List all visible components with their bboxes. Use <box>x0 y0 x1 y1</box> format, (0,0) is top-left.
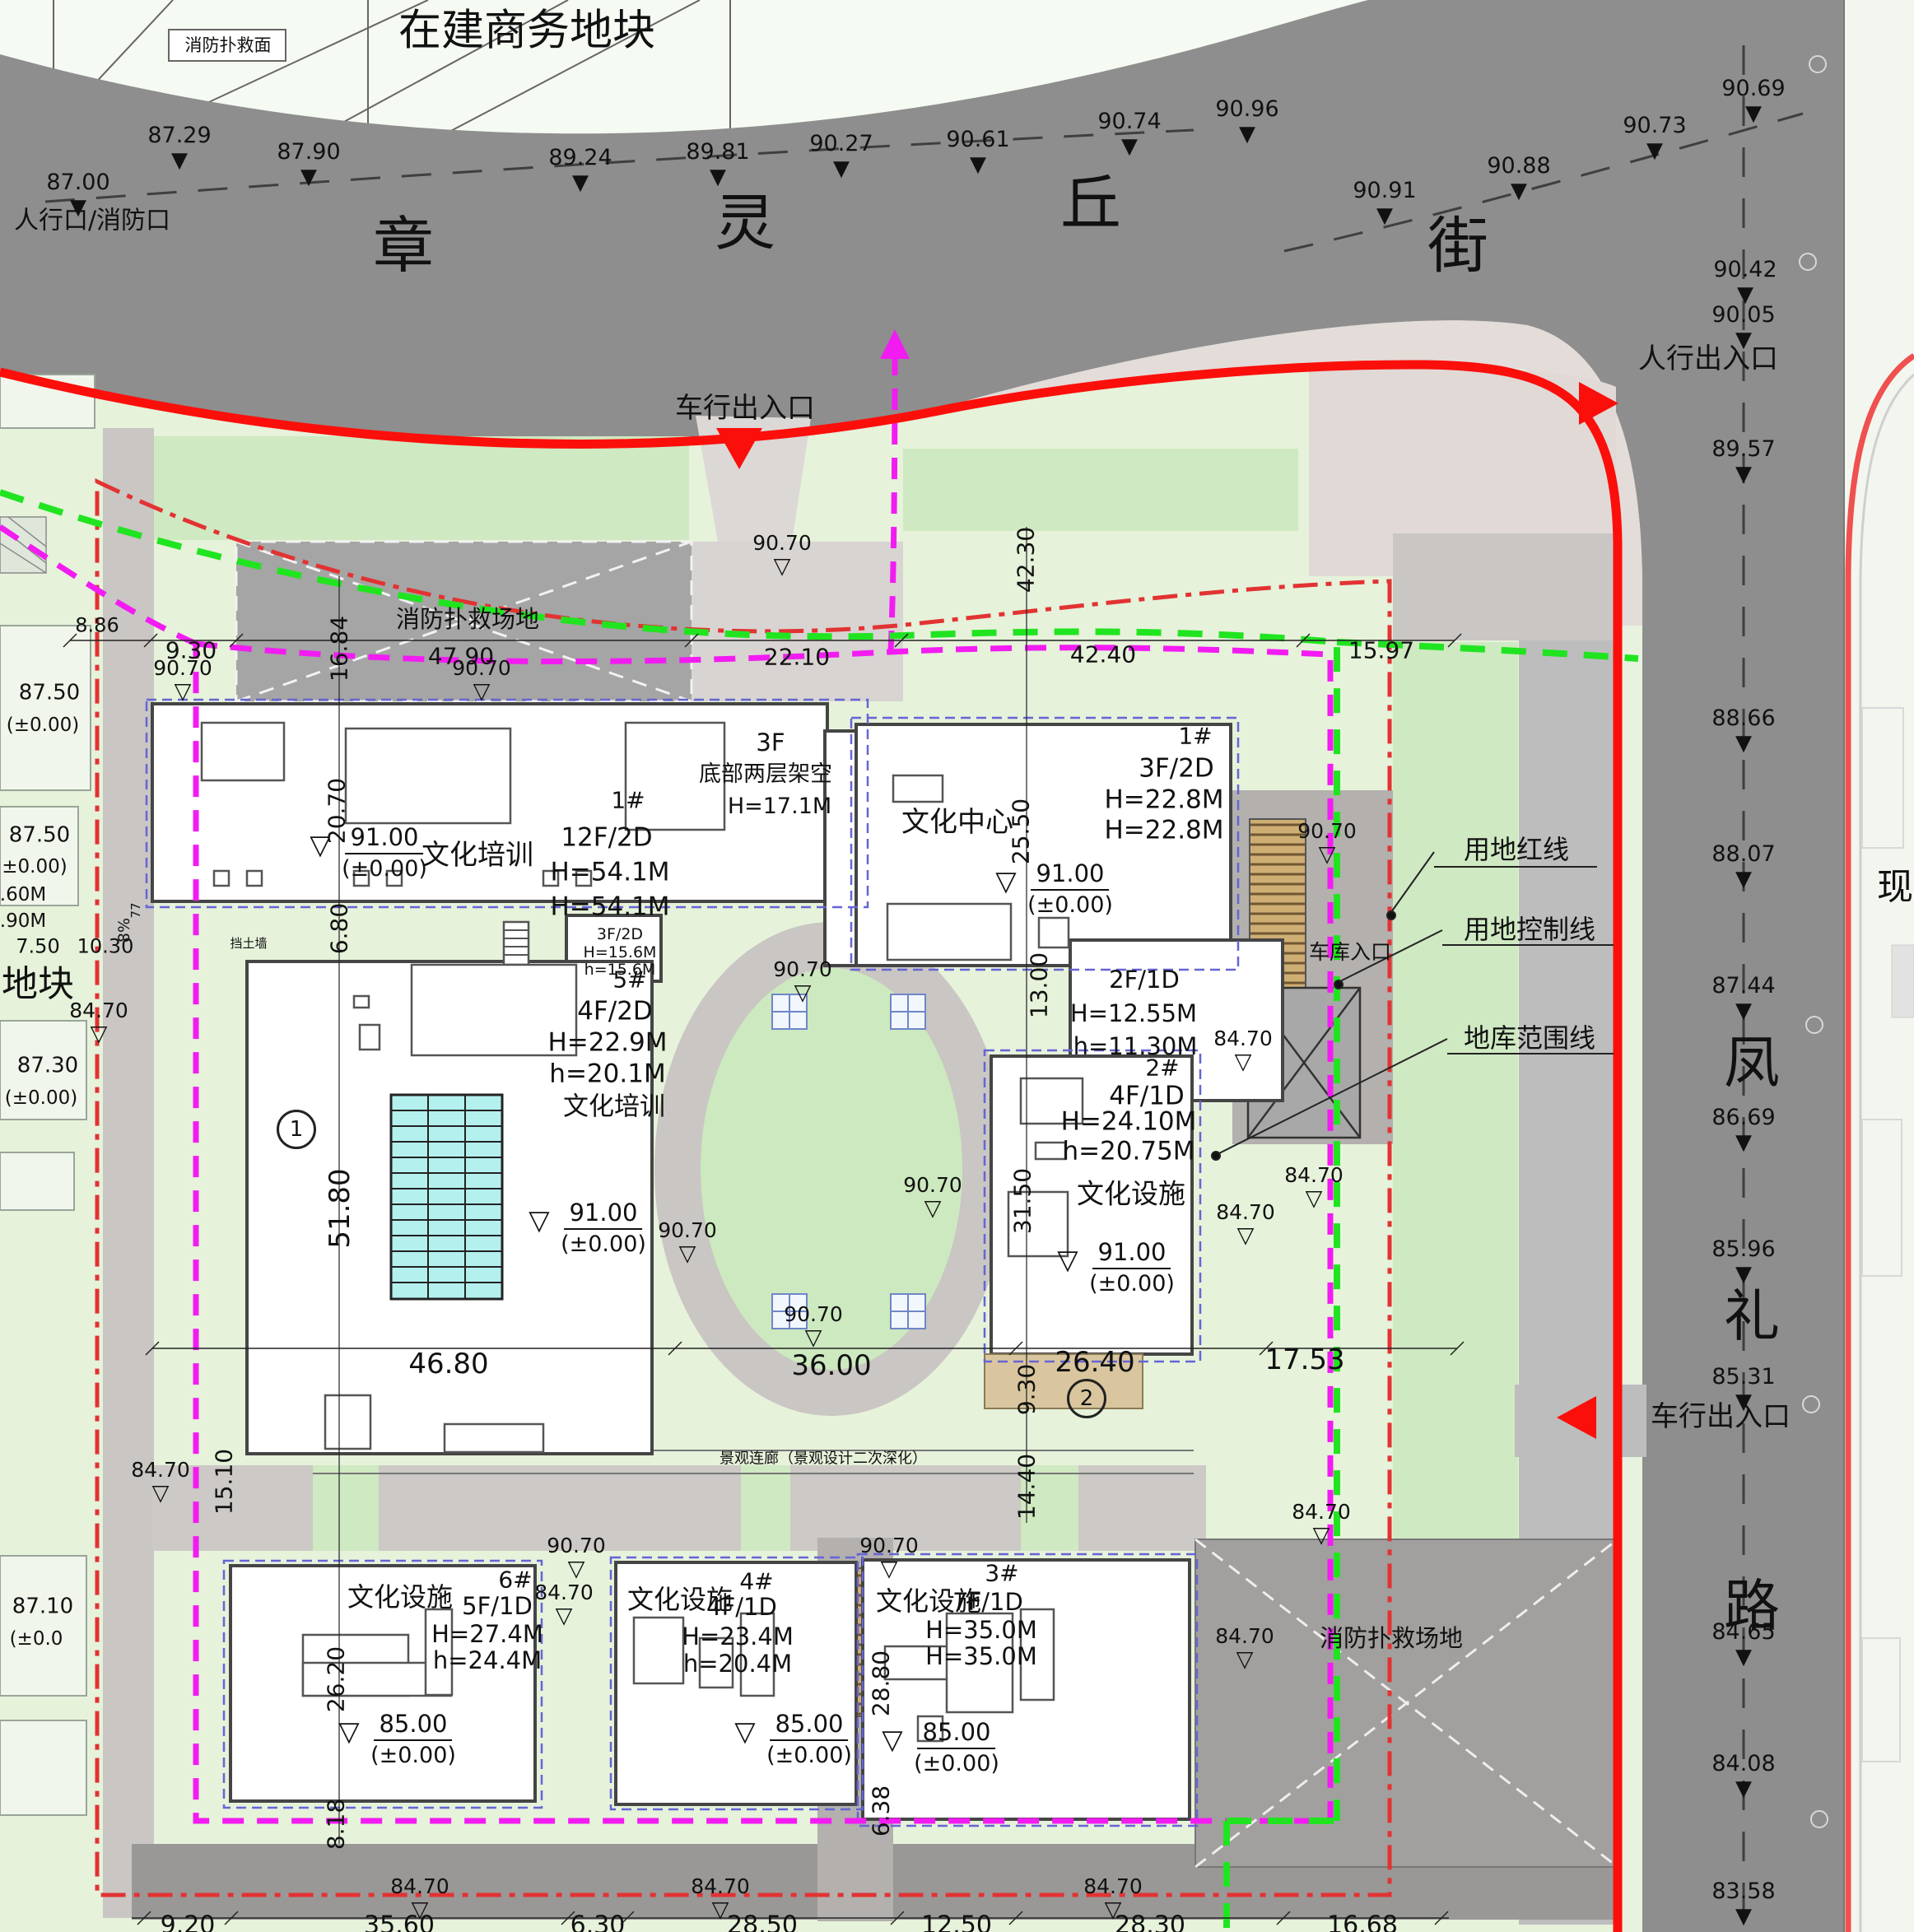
road-elevation-triangle: ▼ <box>1735 1130 1752 1155</box>
street-elevation-triangle: ▼ <box>171 148 188 173</box>
bldg3-h1: H=35.0M <box>925 1618 1037 1642</box>
slope-label2: 77 <box>130 902 143 918</box>
plot-label: 在建商务地块 <box>398 9 655 54</box>
dim: 6.80 <box>327 903 351 954</box>
annex2-floors: 2F/1D <box>1109 967 1180 992</box>
left-elev: 87.30 <box>17 1054 78 1077</box>
vehicle-entrance-right-label: 车行出入口 <box>1651 1403 1791 1432</box>
road-elevation-triangle: ▼ <box>1735 328 1752 352</box>
level-marker: 85.00(±0.00) <box>914 1718 999 1776</box>
fire-site-top-label: 消防扑救场地 <box>396 607 539 631</box>
road-elevation-triangle: ▼ <box>1735 1262 1752 1287</box>
spot-elevation-triangle: ▽ <box>679 1241 696 1267</box>
dim: 7.50 <box>16 936 59 957</box>
bldg6-name: 文化设施 <box>347 1584 453 1612</box>
garage-entrance-label: 车库入口 <box>1309 942 1391 963</box>
road-elevation-triangle: ▼ <box>1735 462 1752 486</box>
bldg-center-h2: H=22.8M <box>1104 817 1223 845</box>
street-char: 丘 <box>1060 172 1121 236</box>
road-elevation: 90.05 <box>1711 304 1775 327</box>
dim: 22.10 <box>764 645 830 668</box>
spot-elevation: 90.70 <box>752 533 812 554</box>
spot-elevation-triangle: ▽ <box>712 1897 729 1923</box>
bldg-center-h1: H=22.8M <box>1104 787 1223 814</box>
dim: 9.20 <box>161 1912 216 1932</box>
spot-elevation-triangle: ▽ <box>1236 1647 1254 1673</box>
dim: 17.53 <box>1264 1346 1344 1376</box>
annotation-overlay: 在建商务地块消防扑救面人行口/消防口车行出入口人行出入口车行出入口章灵丘街凤礼路… <box>0 0 1914 1932</box>
spot-elevation-triangle: ▽ <box>1313 1523 1330 1548</box>
street-elevation-triangle: ▼ <box>970 152 986 177</box>
garage-route-arrow <box>880 329 910 359</box>
bldg-training-h2: H=54.1M <box>550 894 669 921</box>
street-elevation: 87.00 <box>46 171 109 194</box>
spot-elevation: 90.70 <box>153 658 212 679</box>
annex-h1: H=15.6M <box>584 945 657 961</box>
dim: 51.80 <box>326 1168 356 1248</box>
road-elevation: 88.07 <box>1711 843 1775 866</box>
road-elevation-triangle: ▼ <box>1735 1390 1752 1414</box>
spot-elevation: 90.70 <box>452 658 511 679</box>
bldg2-h2: h=20.75M <box>1062 1138 1195 1166</box>
bldg2-floors: 4F/1D <box>1109 1083 1185 1110</box>
circled-number: 1 <box>277 1110 316 1149</box>
road-elevation-triangle: ▼ <box>1735 1776 1752 1801</box>
spot-elevation-triangle: ▽ <box>568 1557 585 1582</box>
annex-floors: 3F/2D <box>597 927 643 943</box>
spot-elevation-triangle: ▽ <box>1237 1223 1255 1249</box>
level-marker-triangle: ▽ <box>310 829 330 861</box>
left-elev: .90M <box>0 911 46 931</box>
bldg-training-floors: 12F/2D <box>561 825 652 852</box>
spot-elevation: 90.70 <box>773 959 832 980</box>
bldg2-h1: H=24.10M <box>1061 1109 1197 1136</box>
spot-elevation-triangle: ▽ <box>556 1604 573 1629</box>
spot-elevation: 84.70 <box>1292 1501 1351 1523</box>
street-elevation: 90.73 <box>1623 114 1686 137</box>
spot-elevation: 84.70 <box>69 1000 128 1022</box>
road-elevation: 84.65 <box>1711 1621 1775 1644</box>
legend-basement-line: 地库范围线 <box>1464 1025 1595 1053</box>
circled-number: 2 <box>1067 1379 1106 1418</box>
street-elevation-triangle: ▼ <box>1121 134 1138 159</box>
bldg-center-name: 文化中心 <box>901 808 1013 838</box>
level-marker-triangle: ▽ <box>734 1716 755 1748</box>
spot-elevation-triangle: ▽ <box>881 1557 898 1582</box>
bldg3-h2: H=35.0M <box>925 1644 1037 1669</box>
spot-elevation-triangle: ▽ <box>1306 1186 1323 1212</box>
level-marker-triangle: ▽ <box>338 1716 359 1748</box>
street-elevation: 87.29 <box>147 124 211 147</box>
level-marker: 85.00(±0.00) <box>766 1710 852 1768</box>
spot-elevation-triangle: ▽ <box>152 1481 170 1506</box>
left-elev: 87.10 <box>12 1595 73 1618</box>
dim: 16.68 <box>1327 1912 1398 1932</box>
bldg5-no: 5# <box>612 967 646 991</box>
road-elevation: 85.31 <box>1711 1366 1775 1389</box>
bldg3-floors: 7F/1D <box>952 1590 1023 1614</box>
bldg5-h1: H=22.9M <box>547 1030 667 1057</box>
road-elevation: 89.57 <box>1711 438 1775 461</box>
level-value: 91.00 <box>1092 1238 1171 1269</box>
dim: 26.20 <box>324 1646 347 1712</box>
bldg5-h2: h=20.1M <box>549 1061 665 1088</box>
dim: 12.50 <box>921 1912 992 1932</box>
bldg-training-name: 文化培训 <box>421 841 533 871</box>
spot-elevation-triangle: ▽ <box>794 980 812 1006</box>
spot-elevation: 90.70 <box>903 1175 962 1196</box>
level-marker-triangle: ▽ <box>995 865 1016 897</box>
street-elevation: 89.24 <box>548 147 612 170</box>
dim: 8.18 <box>324 1799 347 1850</box>
spot-elevation: 84.70 <box>691 1876 750 1897</box>
dim: 9.30 <box>1014 1364 1038 1415</box>
level-marker-triangle: ▽ <box>1057 1244 1078 1276</box>
left-elev: .60M <box>0 885 46 905</box>
spot-elevation: 84.70 <box>131 1459 190 1481</box>
street-elevation: 90.91 <box>1353 179 1416 203</box>
spot-elevation-triangle: ▽ <box>412 1897 429 1923</box>
left-elev: (±0.0 <box>10 1629 63 1649</box>
level-value: 91.00 <box>1031 859 1109 891</box>
road-elevation: 83.58 <box>1711 1880 1775 1903</box>
level-value: 91.00 <box>564 1199 642 1230</box>
road-char: 礼 <box>1724 1287 1780 1346</box>
left-elev: (±0.00) <box>5 1088 77 1108</box>
road-elevation-triangle: ▼ <box>1735 867 1752 892</box>
left-plot-partial: 地块 <box>2 966 74 1003</box>
spot-elevation: 90.70 <box>658 1220 717 1241</box>
dim: 13.00 <box>1027 952 1050 1018</box>
street-char: 章 <box>373 215 434 279</box>
level-datum: (±0.00) <box>370 1743 456 1768</box>
street-char: 灵 <box>715 192 775 256</box>
level-marker: 85.00(±0.00) <box>370 1710 456 1768</box>
dim: 15.10 <box>212 1449 235 1515</box>
bldg-training-h1: H=54.1M <box>550 859 669 887</box>
road-elevation: 88.66 <box>1711 707 1775 730</box>
street-elevation-triangle: ▼ <box>1745 101 1762 126</box>
bldg4-h1: H=23.4M <box>682 1624 794 1649</box>
bldg-center-floors: 3F/2D <box>1139 756 1214 783</box>
fire-rescue-face-label: 消防扑救面 <box>185 36 272 54</box>
level-marker: 91.00(±0.00) <box>1089 1238 1175 1297</box>
spot-elevation-triangle: ▽ <box>473 679 491 705</box>
stilt-h: H=17.1M <box>728 795 831 818</box>
retaining-wall-label: 挡土墙 <box>230 938 267 951</box>
spot-elevation: 84.70 <box>390 1876 449 1897</box>
bldg6-no: 6# <box>498 1567 532 1591</box>
dim: 28.50 <box>727 1912 798 1932</box>
dim: 28.80 <box>869 1650 892 1716</box>
spot-elevation: 84.70 <box>1216 1202 1275 1223</box>
street-elevation: 90.69 <box>1721 77 1785 100</box>
spot-elevation-triangle: ▽ <box>774 554 791 580</box>
level-datum: (±0.00) <box>1027 892 1113 918</box>
bldg-center-no: 1# <box>1178 724 1212 747</box>
spot-elevation-triangle: ▽ <box>805 1325 822 1351</box>
road-elevation: 90.42 <box>1713 258 1777 282</box>
dim: 36.00 <box>791 1352 871 1381</box>
dim: 31.50 <box>1010 1168 1034 1234</box>
level-datum: (±0.00) <box>914 1751 999 1776</box>
street-elevation-triangle: ▼ <box>300 165 317 189</box>
level-value: 85.00 <box>374 1710 452 1741</box>
dim: 14.40 <box>1014 1454 1038 1520</box>
level-datum: (±0.00) <box>1089 1271 1175 1297</box>
stilt-floors: 3F <box>756 730 785 755</box>
spot-elevation-triangle: ▽ <box>1105 1897 1122 1923</box>
dim: 46.80 <box>408 1350 488 1380</box>
legend-red-line: 用地红线 <box>1464 836 1569 864</box>
street-elevation-triangle: ▼ <box>1646 138 1663 163</box>
bldg2-name: 文化设施 <box>1077 1180 1185 1209</box>
bldg2-no: 2# <box>1145 1055 1179 1079</box>
street-elevation-triangle: ▼ <box>1239 122 1255 147</box>
corridor-label: 景观连廊（景观设计二次深化） <box>719 1452 927 1468</box>
dim: 26.40 <box>1055 1348 1134 1378</box>
bldg5-name: 文化培训 <box>563 1094 665 1121</box>
spot-elevation-triangle: ▽ <box>175 679 192 705</box>
ped-fire-entrance-label: 人行口/消防口 <box>14 207 170 234</box>
annex2-h1: H=12.55M <box>1070 1001 1197 1026</box>
dim: 8.86 <box>75 615 119 635</box>
bldg6-floors: 5F/1D <box>462 1594 533 1618</box>
street-elevation-triangle: ▼ <box>1376 203 1393 228</box>
street-elevation-triangle: ▼ <box>710 165 726 189</box>
spot-elevation-triangle: ▽ <box>1319 842 1336 868</box>
road-elevation: 85.96 <box>1711 1238 1775 1261</box>
dim: 15.97 <box>1348 638 1414 662</box>
level-value: 85.00 <box>770 1710 848 1741</box>
street-elevation-triangle: ▼ <box>572 170 589 195</box>
street-elevation-triangle: ▼ <box>1511 179 1527 203</box>
spot-elevation: 90.70 <box>1297 821 1357 842</box>
dim: 42.30 <box>1013 527 1037 593</box>
left-elev: 87.50 <box>19 682 80 704</box>
left-elev: 87.50 <box>9 824 70 846</box>
level-value: 91.00 <box>345 823 423 854</box>
spot-elevation: 84.70 <box>534 1582 594 1604</box>
existing-partial-char: 现 <box>1877 868 1913 906</box>
bldg5-floors: 4F/2D <box>577 999 653 1026</box>
spot-elevation-triangle: ▽ <box>924 1196 942 1222</box>
road-elevation-triangle: ▼ <box>1735 1904 1752 1929</box>
spot-elevation: 84.70 <box>1083 1876 1143 1897</box>
ped-entrance-right-arrow <box>1579 382 1618 425</box>
level-marker-triangle: ▽ <box>529 1204 549 1236</box>
level-marker: 91.00(±0.00) <box>342 823 427 882</box>
site-plan: 在建商务地块消防扑救面人行口/消防口车行出入口人行出入口车行出入口章灵丘街凤礼路… <box>0 0 1914 1932</box>
street-elevation: 90.74 <box>1097 110 1161 133</box>
spot-elevation: 90.70 <box>859 1535 919 1557</box>
dim: 10.30 <box>77 936 134 957</box>
bldg4-floors: 4F/1D <box>706 1594 777 1619</box>
bldg6-h1: H=27.4M <box>431 1622 543 1646</box>
spot-elevation: 84.70 <box>1213 1028 1273 1050</box>
street-char: 街 <box>1427 215 1488 279</box>
level-value: 85.00 <box>917 1718 995 1749</box>
street-elevation: 90.96 <box>1215 98 1278 121</box>
level-marker: 91.00(±0.00) <box>1027 859 1113 918</box>
dim: 6.30 <box>570 1912 626 1932</box>
level-datum: (±0.00) <box>342 856 427 882</box>
dim: 16.84 <box>327 616 351 682</box>
spot-elevation: 84.70 <box>1284 1165 1344 1186</box>
street-elevation: 90.61 <box>946 128 1009 151</box>
road-elevation-triangle: ▼ <box>1735 731 1752 756</box>
street-elevation-triangle: ▼ <box>70 195 86 220</box>
dim: 6.38 <box>869 1785 892 1837</box>
spot-elevation: 90.70 <box>547 1535 606 1557</box>
road-char: 凤 <box>1724 1034 1780 1092</box>
left-elev: (±0.00) <box>7 715 79 735</box>
street-elevation: 89.81 <box>686 141 749 164</box>
spot-elevation-triangle: ▽ <box>1235 1050 1252 1075</box>
spot-elevation: 90.70 <box>784 1304 843 1325</box>
bldg6-h2: h=24.4M <box>433 1648 542 1673</box>
bldg4-h2: h=20.4M <box>683 1651 792 1676</box>
ped-entrance-right-label: 人行出入口 <box>1638 345 1778 375</box>
vehicle-entrance-right-arrow <box>1557 1396 1596 1439</box>
bldg-training-no: 1# <box>611 788 645 812</box>
spot-elevation: 84.70 <box>1215 1626 1274 1647</box>
level-marker: 91.00(±0.00) <box>561 1199 646 1257</box>
street-elevation: 90.27 <box>809 133 873 156</box>
legend-control-line: 用地控制线 <box>1464 916 1595 944</box>
dim: 42.40 <box>1070 642 1136 666</box>
street-elevation: 87.90 <box>277 141 340 164</box>
road-elevation: 87.44 <box>1711 975 1775 998</box>
stilt-label: 底部两层架空 <box>699 763 832 786</box>
level-datum: (±0.00) <box>766 1743 852 1768</box>
vehicle-entrance-top-arrow <box>716 428 762 469</box>
street-elevation-triangle: ▼ <box>833 156 850 181</box>
left-elev: ±0.00) <box>2 857 67 877</box>
spot-elevation-triangle: ▽ <box>91 1022 108 1047</box>
bldg3-no: 3# <box>985 1561 1018 1585</box>
street-elevation: 90.88 <box>1487 155 1550 178</box>
road-elevation-triangle: ▼ <box>1735 999 1752 1023</box>
level-datum: (±0.00) <box>561 1231 646 1257</box>
level-marker-triangle: ▽ <box>882 1724 902 1756</box>
vehicle-entrance-top-label: 车行出入口 <box>675 394 815 424</box>
bldg4-no: 4# <box>739 1569 773 1593</box>
road-elevation: 86.69 <box>1711 1106 1775 1129</box>
dim: 28.30 <box>1115 1912 1185 1932</box>
road-elevation: 84.08 <box>1711 1753 1775 1776</box>
road-elevation-triangle: ▼ <box>1735 1645 1752 1669</box>
fire-site-bottom-label: 消防扑救场地 <box>1320 1626 1463 1650</box>
